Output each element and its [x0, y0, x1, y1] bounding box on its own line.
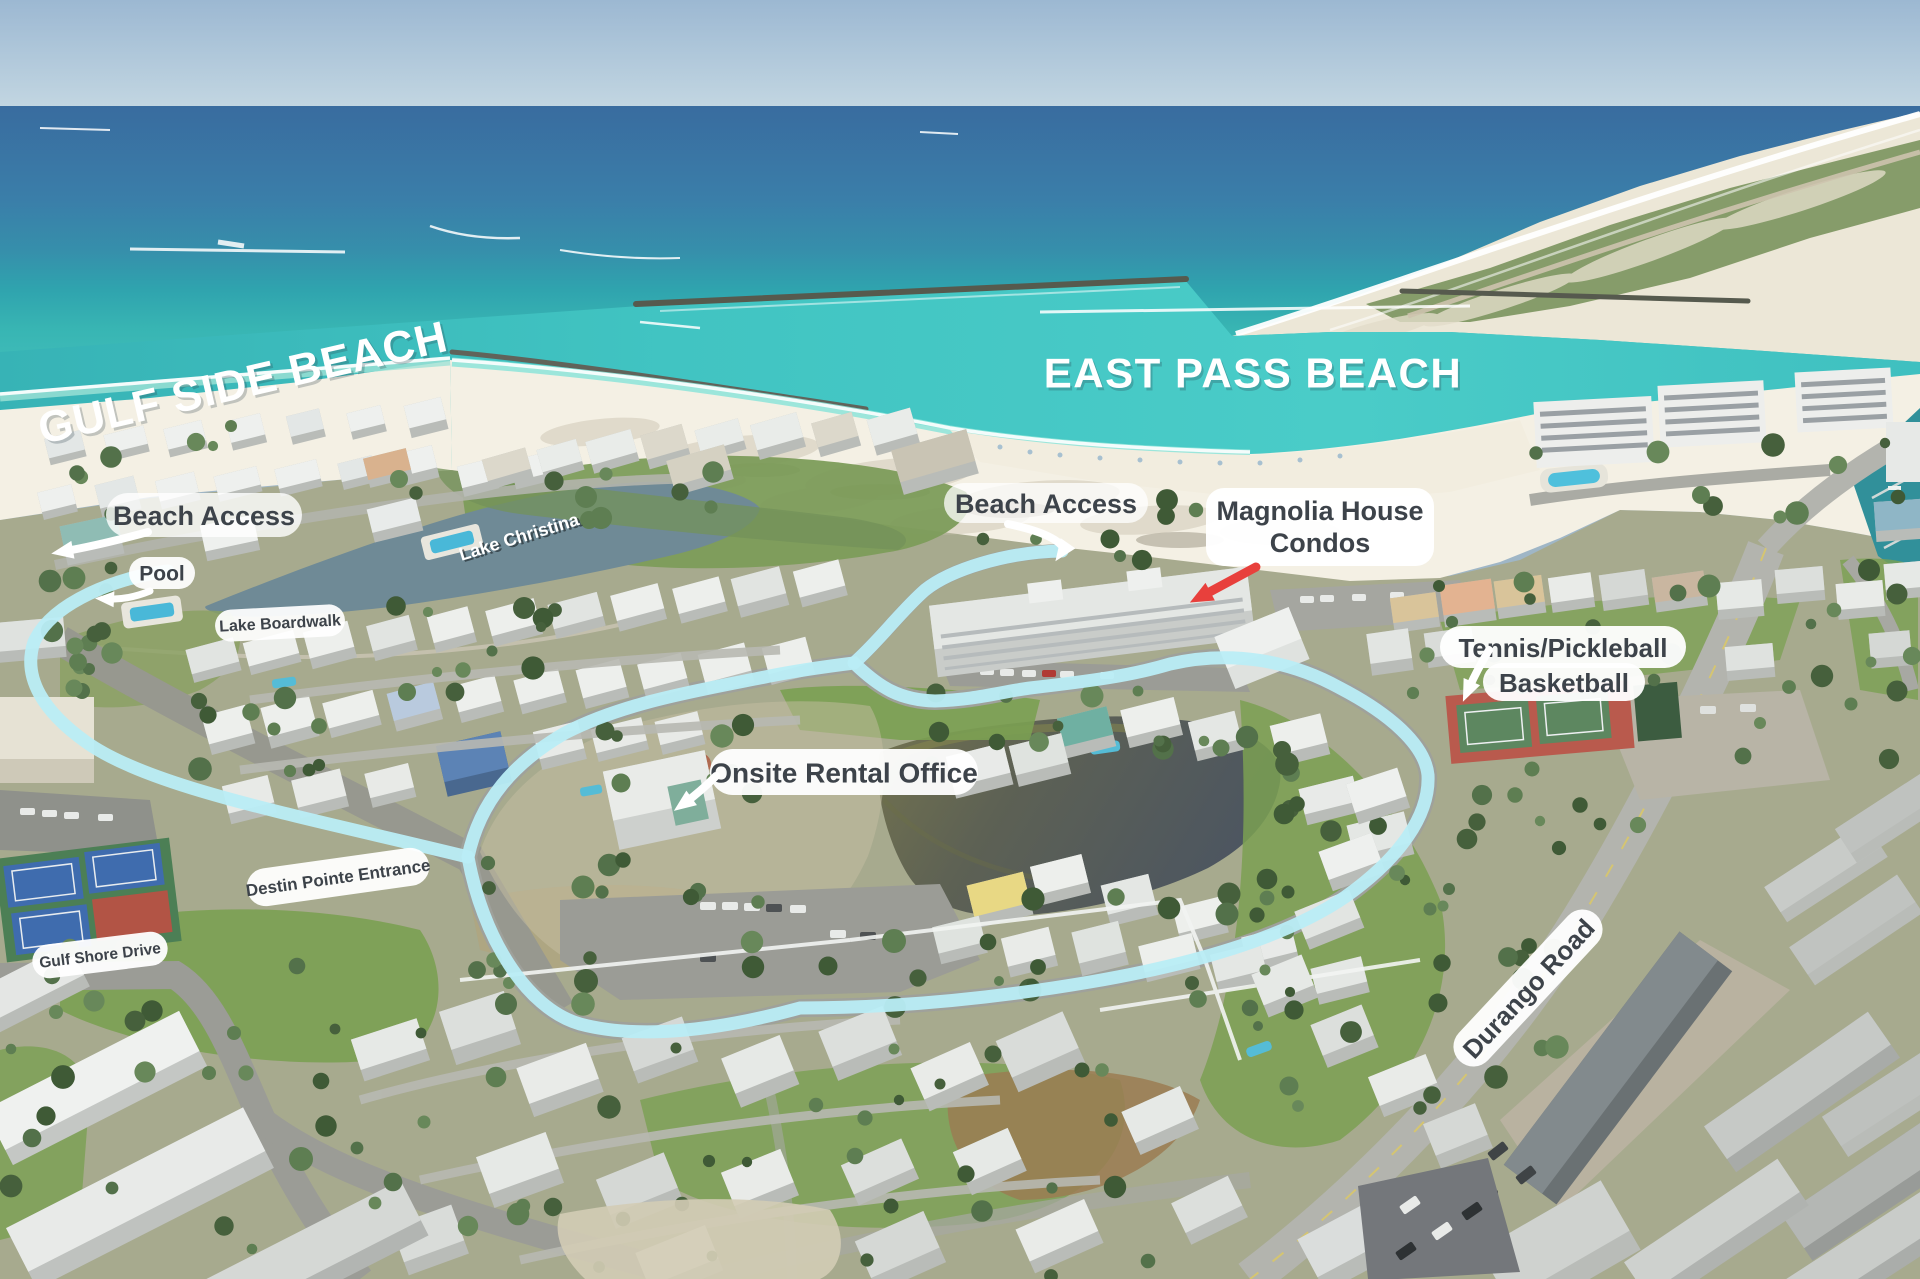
svg-text:Condos: Condos	[1270, 528, 1371, 558]
svg-text:Beach Access: Beach Access	[955, 489, 1137, 519]
svg-text:Magnolia House: Magnolia House	[1216, 496, 1423, 526]
svg-text:Basketball: Basketball	[1499, 668, 1629, 698]
svg-text:Pool: Pool	[139, 563, 185, 586]
svg-text:EAST PASS BEACH: EAST PASS BEACH	[1044, 350, 1462, 397]
svg-text:Onsite Rental Office: Onsite Rental Office	[710, 758, 978, 789]
svg-text:Beach Access: Beach Access	[113, 501, 295, 531]
